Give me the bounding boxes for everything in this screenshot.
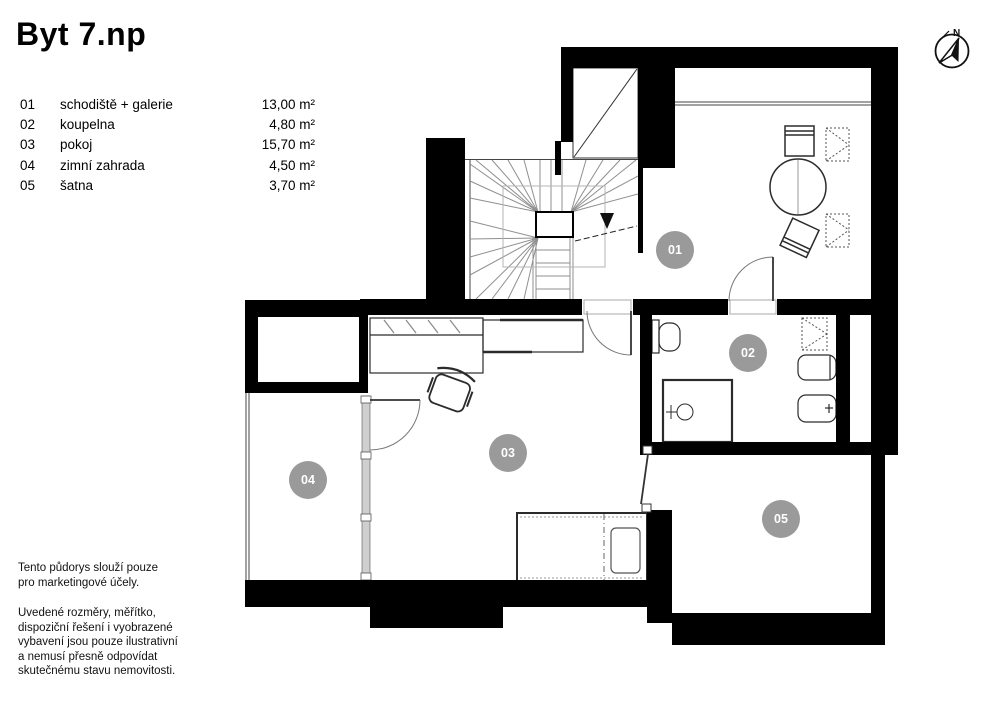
disclaimer-line: a nemusí přesně odpovídat <box>18 650 178 665</box>
disclaimer-line: skutečnému stavu nemovitosti. <box>18 664 178 679</box>
shower <box>663 380 732 442</box>
chair <box>785 126 814 156</box>
compass-north-label: N <box>953 28 960 39</box>
bidet <box>798 395 836 422</box>
door-room04 <box>370 400 420 450</box>
bed <box>517 513 647 582</box>
disclaimer-dimensions: Uvedené rozměry, měřítko, dispoziční řeš… <box>18 606 178 679</box>
disclaimer-line: vybavení jsou pouze ilustrativní <box>18 635 178 650</box>
dining-table <box>770 159 826 215</box>
stair-void <box>573 68 638 158</box>
door-hall-to-room03 <box>584 300 631 355</box>
floor-plan-page: Byt 7.np 01 schodiště + galerie 13,00 m²… <box>0 0 1000 707</box>
dashed-marker <box>802 318 827 350</box>
washbasin <box>798 355 836 380</box>
room-badge-02: 02 <box>729 334 767 372</box>
disclaimer-line: pro marketingové účely. <box>18 576 158 591</box>
office-chair <box>425 363 478 414</box>
wardrobe-front-line <box>675 102 871 105</box>
toilet <box>652 320 680 353</box>
gallery-shelf <box>483 320 583 352</box>
chair <box>780 218 819 257</box>
disclaimer-marketing: Tento půdorys slouží pouze pro marketing… <box>18 561 158 590</box>
dashed-marker <box>826 128 849 247</box>
glass-facade <box>246 393 249 580</box>
door-room01 <box>729 257 776 314</box>
disclaimer-line: dispoziční řešení i vyobrazené <box>18 621 178 636</box>
room-badge-05: 05 <box>762 500 800 538</box>
room-badge-01: 01 <box>656 231 694 269</box>
door-room05 <box>641 446 652 512</box>
pillow <box>611 528 640 573</box>
glazed-partition <box>361 396 371 580</box>
disclaimer-line: Tento půdorys slouží pouze <box>18 561 158 576</box>
bay-window-opening <box>258 317 359 382</box>
room-badge-03: 03 <box>489 434 527 472</box>
disclaimer-line: Uvedené rozměry, měřítko, <box>18 606 178 621</box>
stair-eye <box>536 212 573 237</box>
desk <box>370 318 483 373</box>
stair-down-arrow-icon <box>600 213 614 229</box>
floor-plan: N <box>0 0 1000 707</box>
compass-icon: N <box>936 28 969 68</box>
room-badge-04: 04 <box>289 461 327 499</box>
